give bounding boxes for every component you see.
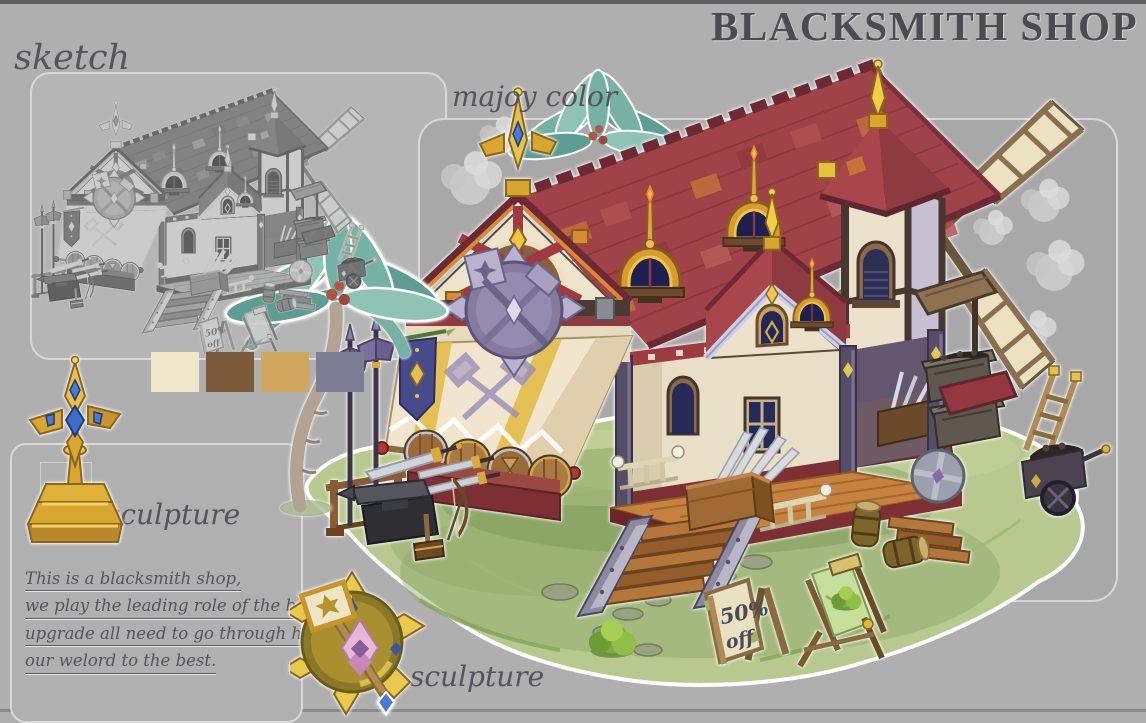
color-swatch-blue-gray (316, 352, 364, 392)
porch-column (616, 356, 632, 514)
color-swatch-brown (206, 352, 254, 392)
major-color-label: majoy color (452, 80, 617, 113)
color-swatch-tan (261, 352, 309, 392)
note-line: our welord to the best. (25, 652, 216, 673)
gold-cross-sculpture (16, 356, 132, 548)
color-palette (151, 352, 364, 392)
description-note: This is a blacksmith shop, we play the l… (25, 570, 297, 680)
sketch-label: sketch (14, 38, 130, 78)
gold-medallion-sculpture (290, 570, 438, 716)
page-title: BLACKSMITH SHOP (711, 2, 1138, 50)
porch-column (840, 346, 856, 480)
note-line: This is a blacksmith shop, (25, 570, 241, 591)
color-swatch-cream (151, 352, 199, 392)
